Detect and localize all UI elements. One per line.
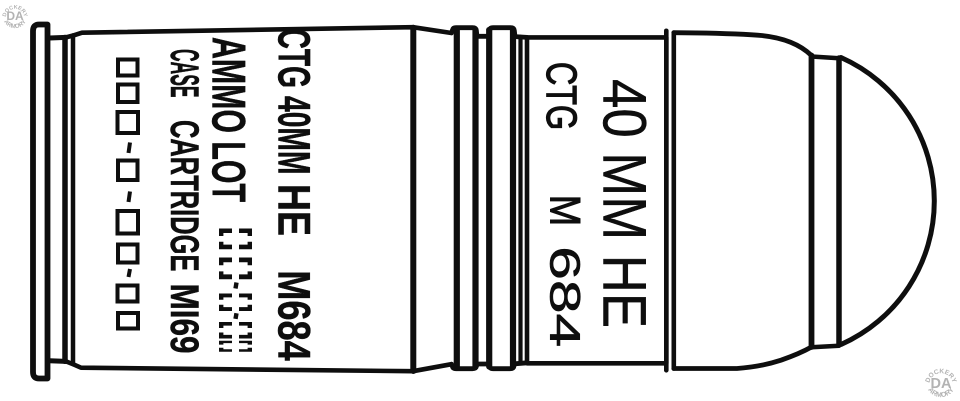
svg-text:AMMO LOT: AMMO LOT	[203, 37, 256, 202]
svg-text:MI69: MI69	[162, 284, 206, 354]
svg-text:DA: DA	[6, 9, 24, 23]
svg-text:HE: HE	[269, 184, 320, 236]
svg-text:684: 684	[541, 246, 588, 347]
svg-text:40 MM HE: 40 MM HE	[591, 79, 659, 328]
svg-text:CTG: CTG	[537, 62, 584, 130]
svg-text:CARTRIDGE: CARTRIDGE	[162, 120, 206, 272]
svg-text:M684: M684	[269, 270, 320, 361]
svg-text:DA: DA	[931, 376, 952, 392]
svg-text:CASE: CASE	[162, 49, 206, 98]
svg-text:M: M	[541, 195, 588, 226]
svg-text:CTG 40MM: CTG 40MM	[269, 29, 320, 175]
